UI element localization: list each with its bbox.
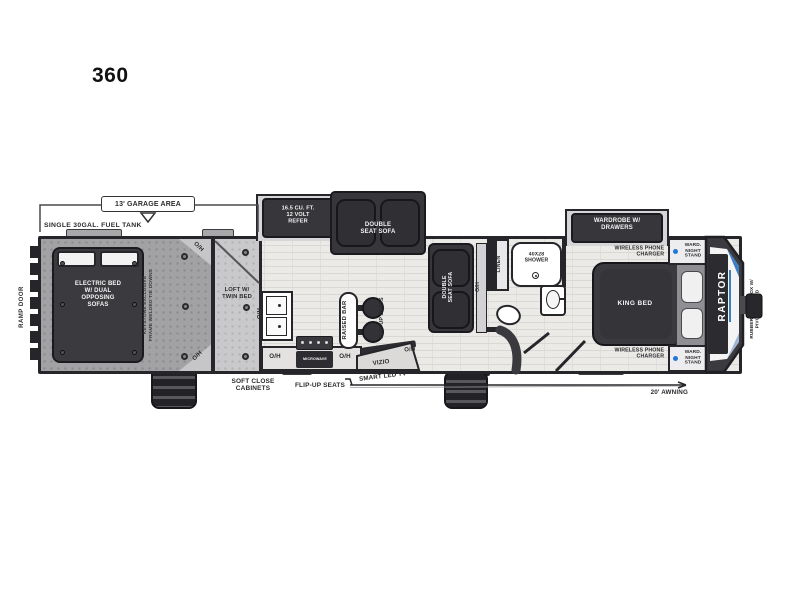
microwave-label: MICROWAVE [303, 357, 326, 361]
raptor-logo: RAPTOR [710, 266, 726, 326]
double-seat-sofa-label: DOUBLE SEAT SOFA [330, 222, 426, 236]
fuel-tank-label: SINGLE 30GAL. FUEL TANK [44, 222, 156, 230]
tv-label: VIZIO SMART LED TV [348, 348, 416, 391]
pinbox-label: RUBBERIZED PINBOX W/ PIVOTING HEAD [750, 279, 764, 340]
bed-anchor-dot [132, 350, 137, 355]
loft-floor [215, 239, 259, 371]
tie-down-anchor [181, 353, 188, 360]
tv-brand: VIZIO [349, 355, 413, 370]
badge-pointer [141, 213, 155, 222]
bathroom-sink [546, 290, 560, 309]
tie-down-anchor [242, 249, 249, 256]
tie-down-anchor [181, 253, 188, 260]
bathroom-wall [562, 239, 566, 287]
bed-anchor-dot [60, 350, 65, 355]
ramp-hinge [30, 246, 39, 258]
awning-label: 20' AWNING [628, 389, 688, 396]
wheel [444, 371, 488, 409]
bed-anchor-dot [132, 261, 137, 266]
nightstand-label: WARD. NIGHT STAND [679, 243, 706, 259]
bed-anchor-dot [60, 261, 65, 266]
sink-drain [278, 325, 281, 328]
garage-area-badge: 13' GARAGE AREA [101, 196, 195, 212]
oh-label: O/H [476, 274, 487, 301]
floorplan-model-number: 360 [92, 64, 152, 88]
oh-label: O/H [262, 353, 288, 360]
keystone-exclusive-label: KEYSTONE EXCLUSIVE FRAME WELDED TIE DOWN… [143, 262, 159, 347]
raptor-logo-text: RAPTOR [717, 270, 731, 321]
wireless-charger-label: WIRELESS PHONE CHARGER [608, 348, 664, 360]
sink-drain [278, 304, 281, 307]
bathroom-wall [487, 239, 495, 291]
flip-up-seats-label: FLIP-UP SEATS [379, 288, 390, 349]
bathroom-wall [487, 327, 501, 332]
nightstand-label: WARD. NIGHT STAND [679, 350, 706, 366]
wireless-charger-label: WIRELESS PHONE CHARGER [608, 246, 664, 258]
shower [511, 242, 562, 287]
tie-down-anchor [243, 304, 250, 311]
awning-line-2 [350, 386, 686, 388]
electric-bed-label: ELECTRIC BED W/ DUAL OPPOSING SOFAS [52, 281, 144, 309]
shower-drain-dot [535, 275, 537, 277]
bed-pillow [681, 271, 703, 303]
refrigerator-label: 16.5 CU. FT. 12 VOLT REFER [265, 206, 331, 225]
floorplan-canvas: 360 [0, 0, 800, 600]
faucet [559, 298, 564, 300]
stove-burner [309, 341, 312, 344]
stove-burner [317, 341, 320, 344]
flip-up-seats-bottom-label: FLIP-UP SEATS [288, 382, 352, 389]
linen-label: LINEN [497, 238, 508, 290]
shower-label: 40X28 SHOWER [515, 252, 558, 264]
charger-indicator-dot [673, 356, 678, 361]
raised-bar-label: RAISED BAR [342, 287, 354, 353]
ramp-hinge [30, 348, 39, 360]
charger-indicator-dot [673, 249, 678, 254]
tv-type: SMART LED TV [351, 369, 415, 384]
tie-down-anchor [182, 303, 189, 310]
double-seat-sofa-label: DOUBLE SEAT SOFA [442, 255, 461, 318]
stove-burner [301, 341, 304, 344]
tie-down-anchor [242, 353, 249, 360]
wardrobe-label: WARDROBE W/ DRAWERS [571, 218, 663, 232]
bed-pillow [681, 308, 703, 339]
oh-label: O/H [258, 289, 271, 339]
awning-arrow [678, 382, 686, 388]
king-bed-label: KING BED [592, 300, 678, 307]
loft-label: LOFT W/ TWIN BED [214, 287, 260, 300]
stove-burner [325, 341, 328, 344]
ramp-door-label: RAMP DOOR [19, 269, 33, 345]
soft-close-cabinets-label: SOFT CLOSE CABINETS [224, 378, 282, 393]
